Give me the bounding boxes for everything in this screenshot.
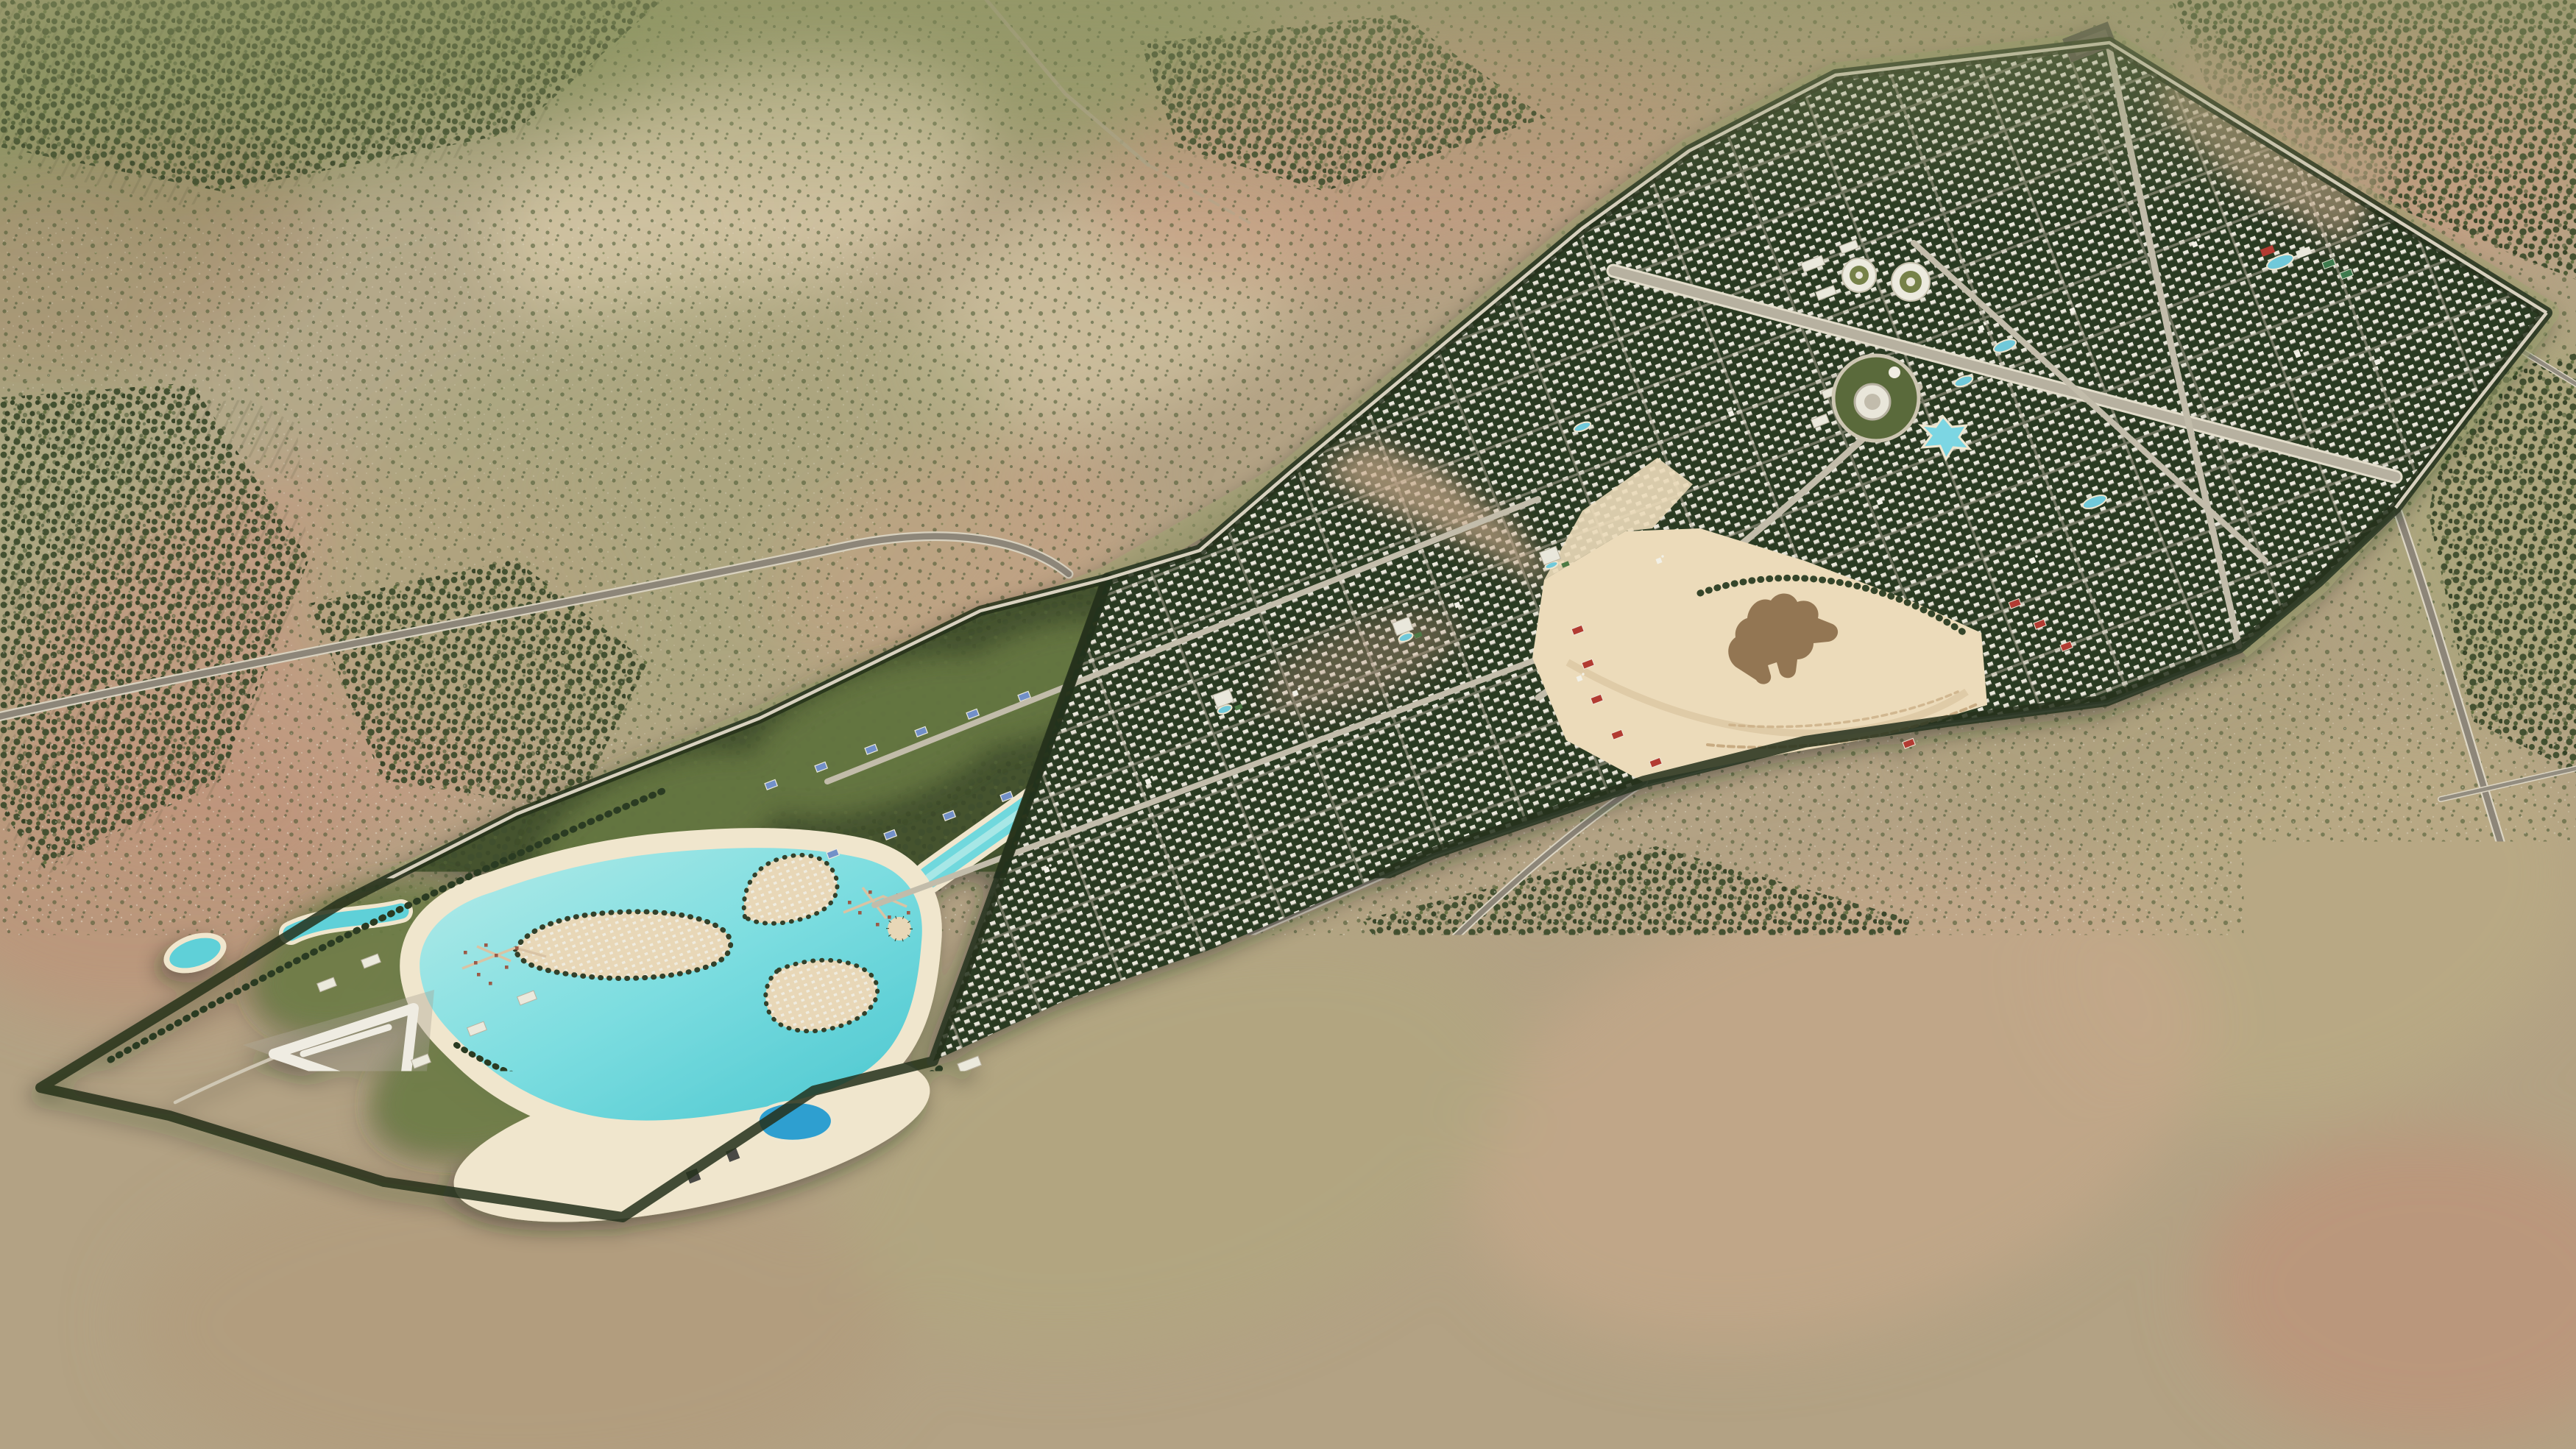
circular-park: [1833, 355, 1919, 441]
scene-canvas: [0, 0, 2576, 1449]
aerial-masterplan-render: Aerial 3D render of a desert master-plan…: [0, 0, 2576, 1449]
ring-building-west: [1842, 258, 1876, 292]
ring-building-east: [1892, 263, 1930, 301]
dome-pavilion: [1889, 366, 1900, 378]
